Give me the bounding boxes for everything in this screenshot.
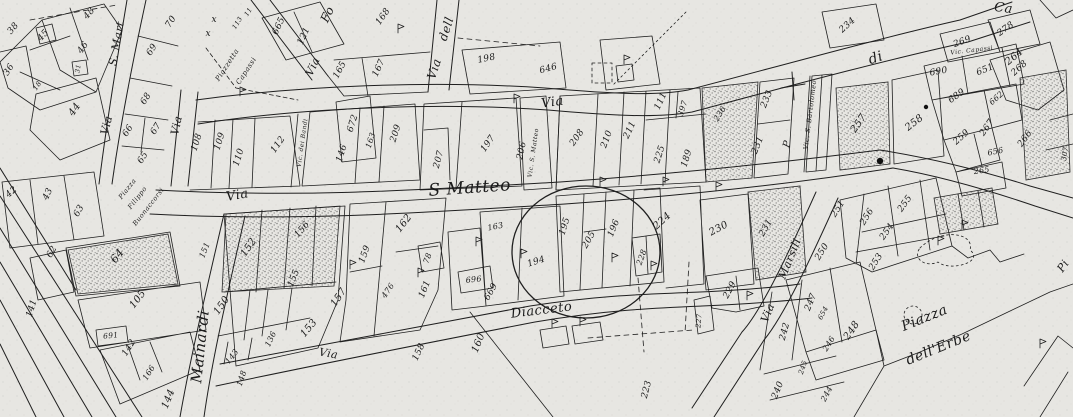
- map-note-x: x: [211, 15, 216, 25]
- map-note-x-2: x: [205, 29, 210, 39]
- parcel-number-696: 696: [465, 274, 482, 285]
- cadastral-map: S. MartViaViaViaS MatteoViadiCaViadellVi…: [0, 0, 1073, 417]
- survey-dot: [877, 158, 883, 164]
- parcel-number-31: 31: [73, 64, 82, 74]
- street-label-ca: Ca: [993, 0, 1014, 17]
- parcel-number-227: 227: [694, 313, 703, 329]
- street-label-via-4: Via: [540, 94, 564, 112]
- map-canvas: S. MartViaViaViaS MatteoViadiCaViadellVi…: [0, 0, 1073, 417]
- survey-dot-small: [924, 105, 928, 109]
- parcel-number-691: 691: [103, 330, 119, 341]
